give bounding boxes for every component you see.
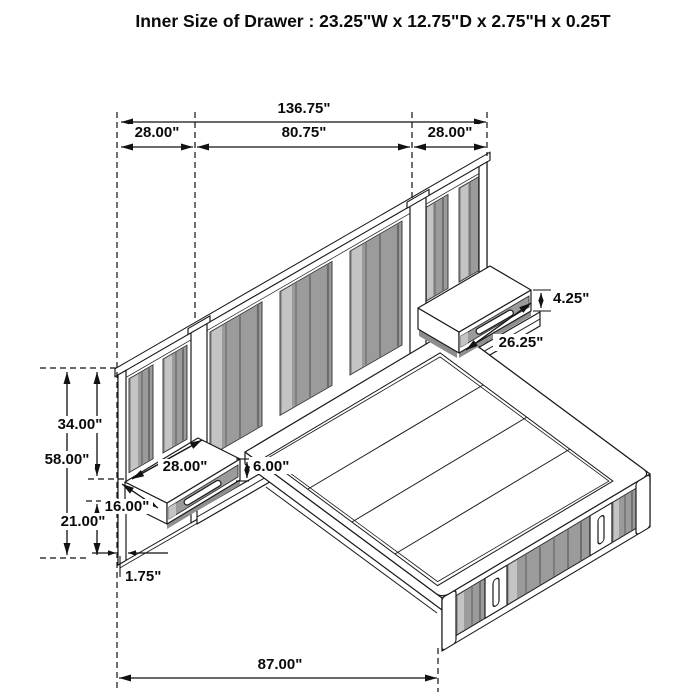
dim-overall-width: 136.75" bbox=[278, 100, 331, 117]
dim-center-panel-width: 80.75" bbox=[282, 124, 327, 141]
bed-corner-post bbox=[636, 474, 650, 535]
dim-left-nightstand-depth: 16.00" bbox=[105, 498, 150, 515]
bed-dimension-diagram: 136.75" 28.00" 80.75" 28.00" 4.25" 26.25… bbox=[0, 0, 700, 700]
bed-corner-post bbox=[442, 590, 456, 651]
dim-right-panel-width: 28.00" bbox=[428, 124, 473, 141]
dim-headboard-total-height: 58.00" bbox=[45, 451, 90, 468]
dim-right-nightstand-height: 4.25" bbox=[553, 290, 589, 307]
headboard-left-stile bbox=[118, 370, 126, 565]
diagram-title: Inner Size of Drawer : 23.25"W x 12.75"D… bbox=[135, 11, 611, 31]
dim-left-panel-width: 28.00" bbox=[135, 124, 180, 141]
drawer-handle-slot bbox=[493, 577, 499, 608]
dim-right-nightstand-width: 26.25" bbox=[499, 334, 544, 351]
drawer-handle-slot bbox=[598, 514, 604, 545]
dim-left-nightstand-width: 28.00" bbox=[163, 458, 208, 475]
dim-headboard-upper-height: 34.00" bbox=[58, 416, 103, 433]
dim-headboard-lower-height: 21.00" bbox=[61, 513, 106, 530]
diagram-canvas: 136.75" 28.00" 80.75" 28.00" 4.25" 26.25… bbox=[0, 0, 700, 700]
dim-panel-thickness: 1.75" bbox=[125, 568, 161, 585]
dim-left-nightstand-height: 6.00" bbox=[253, 458, 289, 475]
dim-platform-length: 87.00" bbox=[258, 656, 303, 673]
